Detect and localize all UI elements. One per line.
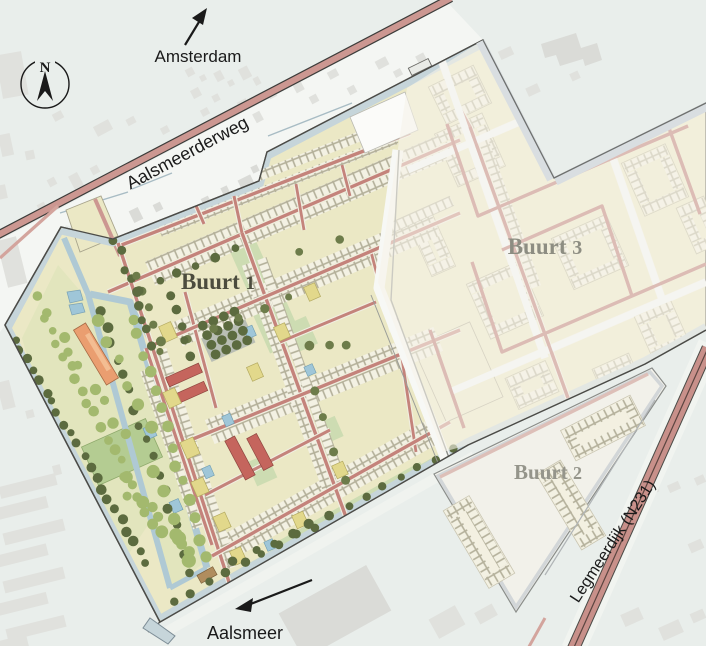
svg-text:Buurt 2: Buurt 2	[514, 460, 582, 484]
svg-text:Amsterdam: Amsterdam	[155, 47, 242, 66]
svg-text:Buurt 1: Buurt 1	[181, 269, 255, 294]
svg-text:Buurt 3: Buurt 3	[508, 234, 583, 259]
svg-text:Aalsmeer: Aalsmeer	[207, 623, 283, 643]
